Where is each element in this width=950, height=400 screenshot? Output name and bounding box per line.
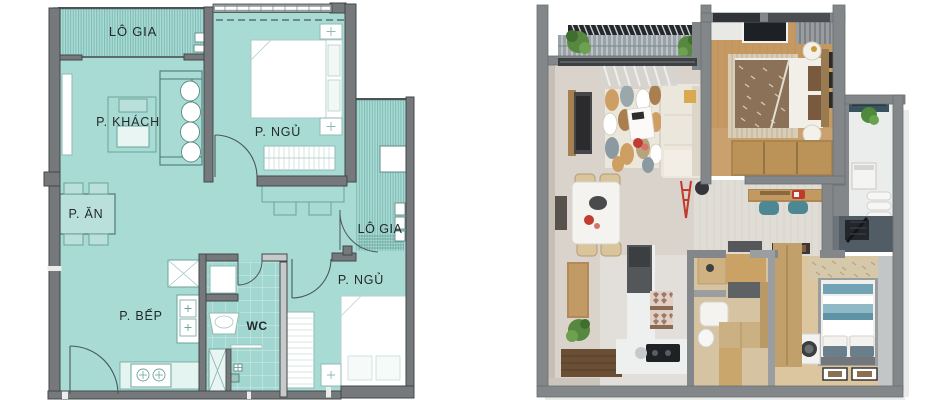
svg-text:LÔ GIA: LÔ GIA xyxy=(358,221,403,236)
svg-text:LÔ GIA: LÔ GIA xyxy=(109,24,157,39)
svg-text:P. KHÁCH: P. KHÁCH xyxy=(96,114,160,129)
svg-text:P. ĂN: P. ĂN xyxy=(68,206,103,221)
svg-text:P. NGỦ: P. NGỦ xyxy=(338,272,384,287)
svg-text:P. BẾP: P. BẾP xyxy=(119,308,162,323)
svg-text:WC: WC xyxy=(247,319,268,333)
svg-text:P. NGỦ: P. NGỦ xyxy=(255,124,301,139)
